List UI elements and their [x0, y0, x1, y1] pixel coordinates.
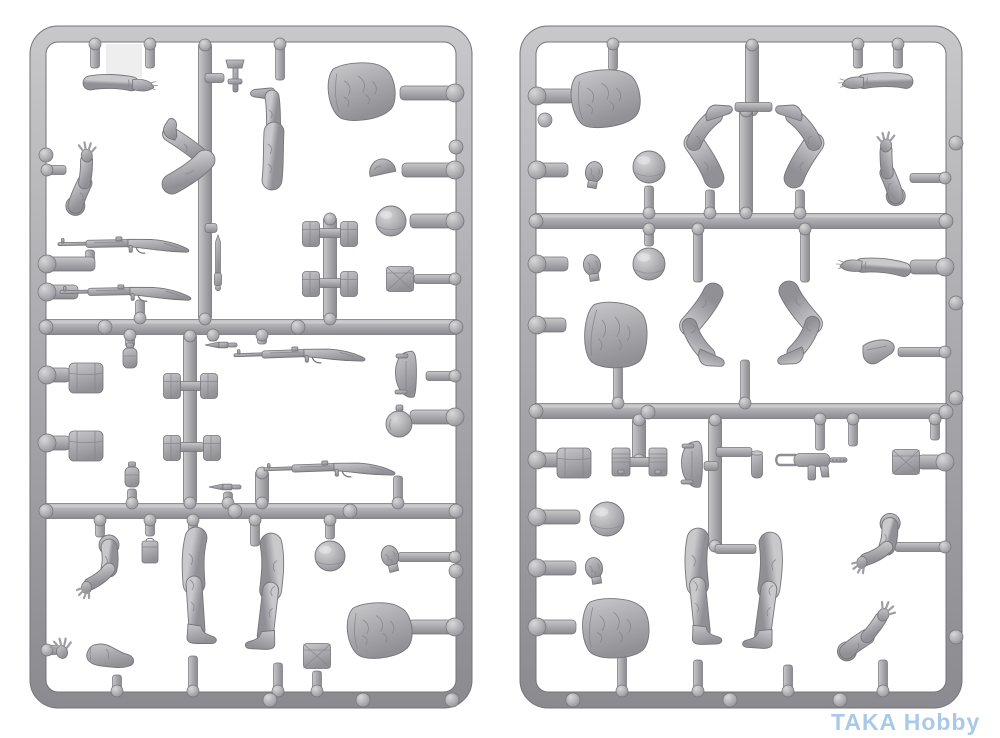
watermark-text: TAKA Hobby: [831, 709, 980, 736]
sprue-gate: [939, 214, 953, 228]
part-entrenching-shovel: [681, 441, 702, 487]
sprue-stub: [205, 74, 224, 83]
sprue-gate: [847, 413, 859, 425]
sprue-gate: [111, 685, 123, 697]
sprue-gate: [528, 161, 546, 179]
sprue-gate: [228, 504, 242, 518]
sprue-stub: [735, 103, 772, 112]
sprue-gate: [207, 329, 219, 341]
part-knife: [205, 342, 237, 348]
sprue-gate: [38, 255, 56, 273]
sprue-gate: [392, 497, 404, 509]
part-kneeling-leg: [771, 289, 817, 366]
sprue-gate: [949, 296, 963, 310]
sprue-gate: [356, 693, 370, 707]
sprue-gate: [852, 38, 864, 50]
sprue-gate: [643, 207, 655, 219]
sprue-gate: [449, 370, 461, 382]
sprue-gate: [274, 38, 286, 50]
sprue-gate: [184, 497, 196, 509]
part-grease-gun-smg: [776, 454, 847, 481]
sprue-gate: [39, 504, 53, 518]
left-sprue: [30, 26, 472, 708]
part-kneeling-leg: [694, 105, 732, 178]
sprue-gate: [949, 136, 963, 150]
sprue-stub: [716, 448, 752, 457]
part-musette-pack: [69, 363, 103, 393]
sprue-gate: [939, 541, 951, 553]
part-torso-back: [326, 60, 396, 122]
sprue-gate: [616, 685, 628, 697]
sprue-gate: [799, 223, 811, 235]
sprue-gate: [892, 38, 904, 50]
part-raised-arm: [864, 130, 917, 207]
sprue-gate: [324, 313, 336, 325]
sprue-stub: [316, 279, 344, 288]
sprue-scene: [0, 0, 1000, 738]
sprue-gate: [324, 514, 336, 526]
part-torso-back: [346, 601, 413, 660]
sprue-gate: [723, 693, 737, 707]
part-rifle: [234, 345, 365, 366]
sprue-gate: [794, 207, 806, 219]
sprue-gate: [528, 451, 546, 469]
sprue-gate: [41, 164, 53, 176]
sprue-stub: [715, 545, 756, 554]
sprue-runner: [746, 42, 759, 112]
sprue-gate: [607, 38, 619, 50]
part-standing-leg: [742, 542, 779, 649]
sprue-gate: [38, 283, 56, 301]
sprue-gate: [566, 693, 580, 707]
part-head: [379, 544, 402, 574]
sprue-gate: [641, 405, 655, 419]
part-raised-arm: [835, 591, 898, 671]
sprue-gate: [98, 320, 112, 334]
sprue-gate: [94, 514, 106, 526]
part-helmet: [633, 151, 665, 183]
sprue-gate: [446, 618, 464, 636]
part-ammo-pouch: [303, 222, 320, 247]
sprue-gate: [612, 397, 624, 409]
sprue-gate: [446, 161, 464, 179]
part-musette-pack: [557, 448, 591, 478]
part-helmet: [315, 541, 345, 571]
part-head: [582, 253, 603, 282]
sprue-gate: [324, 213, 336, 225]
sprue-gate: [939, 405, 953, 419]
part-kneeling-leg: [686, 291, 732, 368]
sprue-gate: [528, 255, 546, 273]
sprue-gate: [38, 434, 56, 452]
sprue-gate: [643, 223, 655, 235]
part-raised-arm: [55, 141, 106, 217]
part-bag-pouch: [304, 644, 331, 669]
part-rifle: [58, 236, 189, 255]
part-folded-tool: [226, 60, 244, 92]
part-entrenching-shovel: [395, 351, 416, 397]
part-rifle: [60, 284, 191, 303]
sprue-gate: [936, 453, 954, 471]
part-ammo-pouch: [341, 272, 358, 297]
sprue-gate: [256, 329, 268, 341]
sprue-gate: [814, 413, 826, 425]
sprue-gate: [446, 408, 464, 426]
part-helmet: [633, 248, 665, 280]
sprue-gate: [184, 330, 196, 342]
part-helmet: [590, 502, 624, 536]
sprue-gate: [134, 312, 146, 324]
sprue-gate: [126, 497, 138, 509]
sprue-photo: TAKA Hobby: [0, 0, 1000, 738]
part-torso-back: [581, 598, 650, 660]
part-radio-pouch: [649, 448, 667, 476]
part-standing-leg: [245, 543, 280, 650]
sprue-runner: [740, 108, 753, 215]
right-sprue: [520, 26, 963, 708]
part-kneeling-leg: [776, 105, 814, 178]
sprue-gate: [291, 320, 305, 334]
sprue-gate: [449, 320, 463, 334]
sprue-gate: [939, 172, 951, 184]
sprue-stub: [316, 229, 344, 238]
part-ammo-box: [142, 538, 158, 563]
sprue-gate: [692, 223, 704, 235]
sprue-gate: [833, 693, 847, 707]
sprue-gate: [311, 685, 323, 697]
sprue-gate: [528, 316, 546, 334]
sprue-gate: [446, 212, 464, 230]
sprue-gate: [949, 391, 963, 405]
part-bag-pouch: [893, 450, 920, 475]
sprue-gate: [929, 413, 941, 425]
sprue-gate: [739, 397, 751, 409]
part-field-cap: [367, 156, 396, 176]
part-torso-back: [569, 67, 642, 130]
part-musette-pack: [69, 431, 103, 461]
sprue-gate: [692, 685, 704, 697]
sprue-runner: [199, 42, 212, 321]
part-ammo-pouch: [201, 374, 218, 399]
sprue-gate: [529, 214, 543, 228]
sprue-gate: [528, 508, 546, 526]
part-canteen: [386, 405, 412, 437]
part-bayonet: [215, 235, 222, 291]
part-standing-leg: [689, 538, 722, 644]
sprue-gate: [199, 39, 211, 51]
sprue-gate: [124, 329, 136, 341]
sprue-stub: [398, 553, 457, 562]
part-bent-arm: [851, 509, 901, 577]
sprue-gate: [343, 504, 357, 518]
sprue-stub: [704, 462, 718, 471]
part-rifle: [264, 459, 395, 480]
sprue-gate: [144, 38, 156, 50]
part-lying-forearm: [836, 259, 905, 274]
sprue-gate: [936, 258, 954, 276]
sprue-gate: [949, 630, 963, 644]
part-head: [584, 556, 605, 585]
part-head: [583, 160, 604, 189]
sprue-gate: [449, 273, 461, 285]
part-ammo-pouch: [303, 272, 320, 297]
sprue-gate: [529, 404, 543, 418]
sprue-gate: [187, 514, 199, 526]
part-grenade: [123, 343, 137, 368]
sprue-gate: [939, 346, 951, 358]
backdrop-patch: [106, 44, 142, 78]
sprue-gate: [538, 113, 552, 127]
part-open-hand: [49, 636, 74, 661]
sprue-gate: [709, 414, 721, 426]
part-lower-leg-boot: [87, 644, 134, 668]
sprue-gate: [249, 514, 261, 526]
sprue-gate: [528, 87, 546, 105]
part-radio-pouch: [612, 448, 630, 476]
sprue-gate: [38, 366, 56, 384]
part-torso-front: [581, 300, 650, 372]
part-ammo-pouch: [164, 436, 181, 461]
sprue-gate: [746, 39, 758, 51]
sprue-gate: [704, 207, 716, 219]
part-ammo-pouch: [204, 436, 221, 461]
sprue-stub: [205, 224, 217, 233]
part-cylinder-part: [752, 451, 763, 478]
part-standing-leg: [187, 538, 216, 644]
part-ammo-pouch: [164, 374, 181, 399]
sprue-gate: [740, 207, 752, 219]
sprue-gate: [449, 140, 463, 154]
sprue-runner: [184, 333, 197, 505]
sprue-gate: [449, 551, 461, 563]
part-bag-pouch: [387, 267, 414, 292]
sprue-gate: [256, 497, 268, 509]
sprue-gate: [445, 693, 459, 707]
part-grenade: [125, 462, 139, 487]
part-lying-forearm: [838, 74, 907, 89]
sprue-gate: [877, 685, 889, 697]
sprue-gate: [449, 504, 463, 518]
sprue-runner: [709, 417, 722, 548]
part-hanging-leg: [251, 88, 276, 180]
part-bent-arm: [77, 535, 119, 598]
sprue-gate: [528, 559, 546, 577]
sprue-gate: [263, 693, 277, 707]
sprue-gate: [449, 564, 463, 578]
sprue-gate: [528, 618, 546, 636]
sprue-gate: [446, 84, 464, 102]
sprue-gate: [89, 38, 101, 50]
sprue-gate: [41, 644, 53, 656]
part-crusher-cap: [863, 340, 894, 364]
sprue-gate: [199, 313, 211, 325]
part-helmet: [376, 206, 406, 236]
part-ammo-pouch: [341, 222, 358, 247]
part-lying-forearm: [90, 76, 159, 92]
part-knife: [209, 484, 241, 490]
sprue-gate: [39, 320, 53, 334]
sprue-gate: [144, 514, 156, 526]
sprue-gate: [39, 148, 53, 162]
sprue-gate: [782, 685, 794, 697]
sprue-gate: [187, 685, 199, 697]
